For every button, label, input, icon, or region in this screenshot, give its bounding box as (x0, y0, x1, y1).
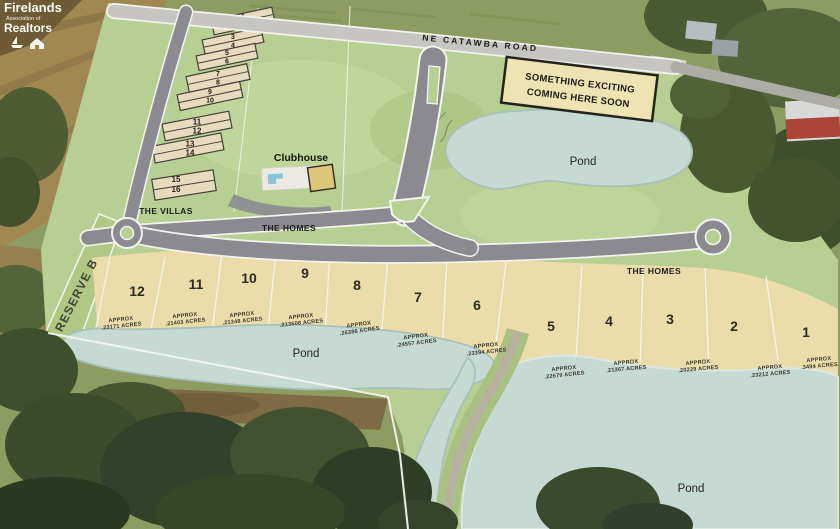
lot-number: 11 (189, 276, 204, 292)
road-label-the-homes-east: THE HOMES (627, 266, 681, 276)
lot-number: 4 (605, 313, 613, 329)
barn-roof-red (786, 117, 840, 140)
villa-lot-number: 12 (193, 127, 202, 136)
house-roof (685, 20, 717, 41)
villa-lot-number: 13 (186, 140, 195, 149)
logo-line-3: Realtors (4, 21, 52, 35)
lot-number: 7 (414, 289, 422, 305)
lot-number: 10 (241, 270, 257, 286)
pond-north (446, 110, 692, 189)
lot-number: 6 (473, 297, 481, 313)
road-label-the-villas: THE VILLAS (139, 206, 193, 216)
clubhouse-building (307, 164, 335, 191)
villa-lot-number: 10 (206, 98, 214, 105)
villa-lot-number: 14 (186, 149, 195, 158)
roundabout-west-island (121, 227, 134, 240)
lot-number: 2 (730, 318, 738, 334)
villa-lot-number: 3 (231, 34, 235, 41)
logo-line-1: Firelands (4, 0, 62, 15)
pond-west-label: Pond (293, 348, 320, 360)
lot-number: 1 (802, 324, 810, 340)
villa-lot-number: 5 (225, 50, 229, 57)
site-plan-screenshot: 1 2 3 4 5 6 7 8 9 10 11 12 13 14 15 16 (0, 0, 840, 529)
lot-number: 3 (666, 311, 674, 327)
lot-number: 8 (353, 277, 361, 293)
pond-north-label: Pond (570, 156, 597, 168)
site-plan-map: 1 2 3 4 5 6 7 8 9 10 11 12 13 14 15 16 (0, 0, 840, 529)
tree (748, 158, 840, 242)
villa-lot-number: 9 (208, 89, 212, 96)
clubhouse-label: Clubhouse (274, 152, 328, 164)
median-island (427, 66, 440, 104)
lot-number: 5 (547, 318, 555, 334)
villa-lot-number: 7 (216, 71, 220, 78)
house-roof (711, 39, 738, 57)
villa-lot-number: 6 (225, 59, 229, 66)
pond-south-label: Pond (678, 483, 705, 495)
lot-number: 9 (301, 265, 309, 281)
lot-number: 12 (129, 283, 145, 299)
villa-lot-number: 16 (172, 185, 181, 194)
roundabout-east-island (706, 230, 721, 245)
villa-lot-number: 15 (172, 175, 181, 184)
villa-lot-number: 11 (193, 118, 202, 127)
road-label-the-homes-west: THE HOMES (262, 223, 316, 233)
